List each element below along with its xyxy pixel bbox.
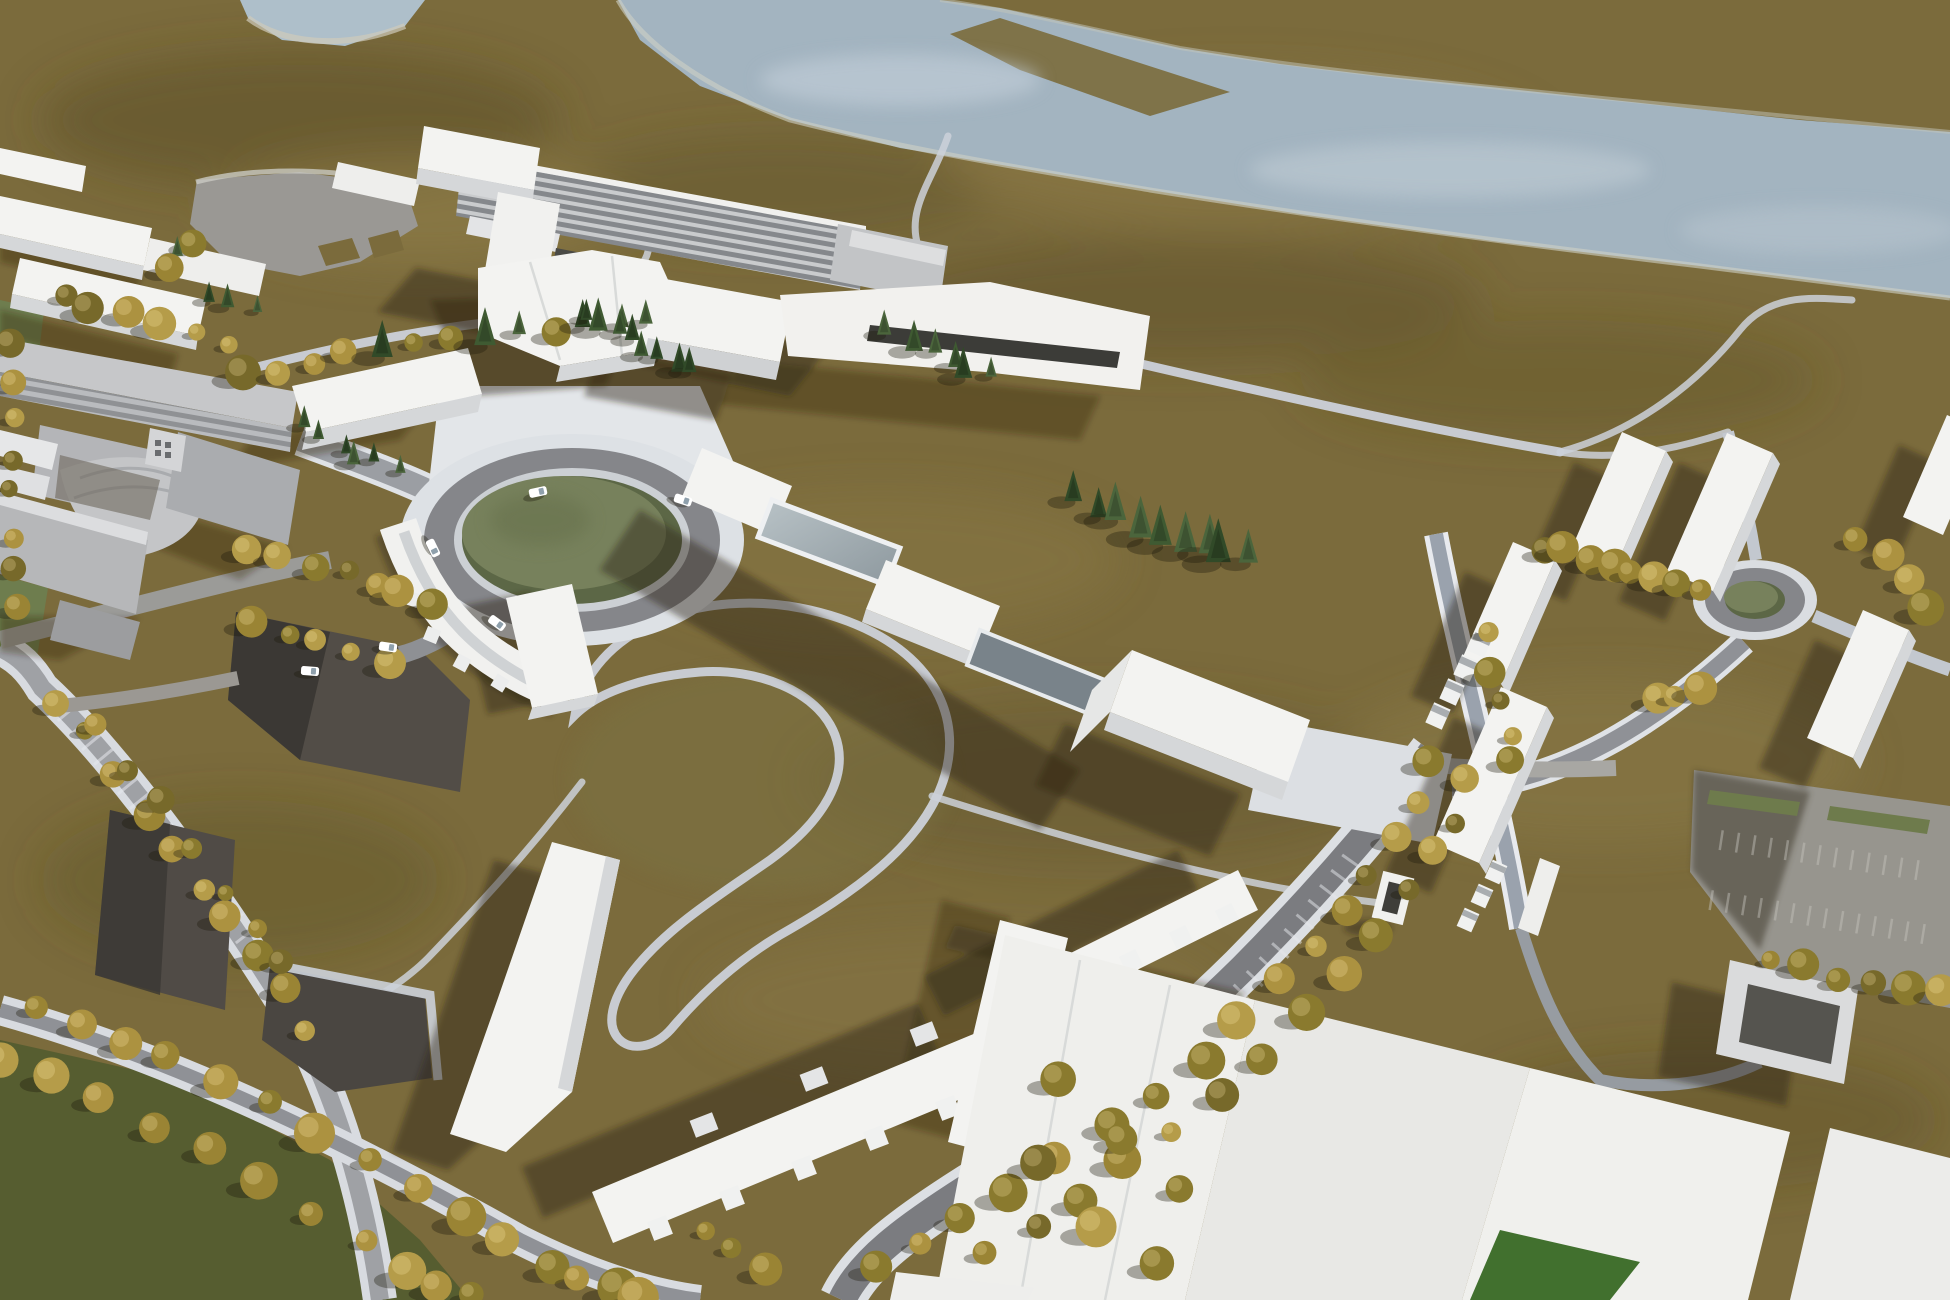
roundabout2-green bbox=[1724, 581, 1778, 613]
campus-tower-window bbox=[165, 452, 171, 458]
roundabout-green-mottle bbox=[490, 494, 590, 546]
masterplan-scene bbox=[0, 0, 1950, 1300]
campus-tower-window bbox=[155, 440, 161, 446]
campus-tower-window bbox=[155, 450, 161, 456]
aerial-masterplan-rendering bbox=[0, 0, 1950, 1300]
campus-tower-window bbox=[165, 442, 171, 448]
